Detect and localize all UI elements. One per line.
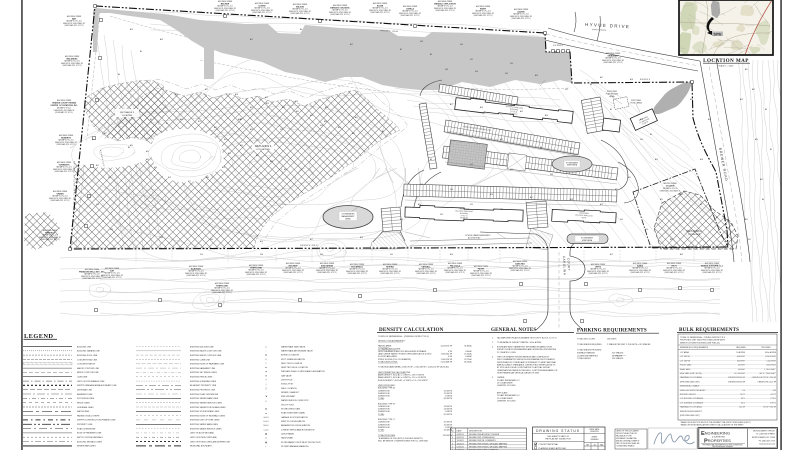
svg-text:CATCH BASIN: CATCH BASIN <box>281 432 294 435</box>
svg-text:MINIMUM BULK REQUIREMENTS: MINIMUM BULK REQUIREMENTS <box>680 347 709 349</box>
svg-text:PICNIC AREA: PICNIC AREA <box>630 101 642 104</box>
svg-text:REVISED PER RE: COMMENTS: REVISED PER RE: COMMENTS <box>469 440 496 442</box>
svg-text:TOTAL AREA OF SUBJECT PARCEL:: TOTAL AREA OF SUBJECT PARCEL: 94.8± ACRE… <box>497 341 542 344</box>
svg-text:50 FEET: 50 FEET <box>738 369 746 371</box>
svg-text:TOTAL SPACES PROVIDED:: TOTAL SPACES PROVIDED: <box>577 349 602 352</box>
svg-text:2,561 FEET: 2,561 FEET <box>766 360 776 362</box>
svg-text:TOTAL BUILDABLE AREA: 4,128,57: TOTAL BUILDABLE AREA: 4,128,570 SF - 2,1… <box>378 366 449 369</box>
svg-text:0.00 AC: 0.00 AC <box>465 355 472 358</box>
svg-text:BUILDING TYPE 'A':: BUILDING TYPE 'A': <box>378 387 396 390</box>
svg-text:B5: B5 <box>140 51 142 53</box>
svg-text:APPLICANT:: APPLICANT: <box>497 391 508 394</box>
svg-text:COURT: COURT <box>567 258 571 271</box>
svg-text:MATCHLINES: MATCHLINES <box>77 410 90 413</box>
svg-text:PLANNING BOARD APPROVAL: PLANNING BOARD APPROVAL <box>539 447 566 450</box>
svg-text:BLDG: BLDG <box>582 217 587 219</box>
svg-text:MUNICIPAL BOUNDARY: MUNICIPAL BOUNDARY <box>190 445 213 448</box>
svg-text:446: 446 <box>440 214 443 216</box>
svg-text:TAX MAP IDENTIFICATION NUMBER:: TAX MAP IDENTIFICATION NUMBER: SECTION 9… <box>497 337 557 340</box>
svg-text:1,009,226 SF: 1,009,226 SF <box>441 359 453 361</box>
svg-text:MONTGOMERY, NY 12549: MONTGOMERY, NY 12549 <box>752 437 775 439</box>
svg-text:WATER SERVICE CURB STOP: WATER SERVICE CURB STOP <box>281 399 309 402</box>
svg-text:10 ACRES: 10 ACRES <box>736 351 745 354</box>
svg-text:AREA: AREA <box>610 95 616 98</box>
svg-text:EXISTING MINOR CONTOUR LINE: EXISTING MINOR CONTOUR LINE <box>190 355 222 357</box>
svg-text:THE PLAN SET ISSUED FOR:: THE PLAN SET ISSUED FOR: <box>545 438 571 441</box>
svg-text:448: 448 <box>445 69 448 71</box>
svg-text:4.731 ACRES: 4.731 ACRES <box>256 148 270 151</box>
svg-text:▤: ▤ <box>265 408 267 411</box>
svg-text:BASE DENSITY: 46.52 AC x 3 UN: BASE DENSITY: 46.52 AC x 3 UNITS x 1.15 … <box>378 376 427 379</box>
svg-text:09/15/23: 09/15/23 <box>457 437 464 439</box>
svg-text:PROPOSED USE: MULTIPLE DWELLIN: PROPOSED USE: MULTIPLE DWELLINGS WITH <box>680 340 725 342</box>
svg-text:Ph: (845) 457-7727: Ph: (845) 457-7727 <box>759 440 775 442</box>
svg-text:GAY: GAY <box>110 269 115 272</box>
svg-text:○: ○ <box>265 392 266 394</box>
svg-text:LIMIT OF NYSDEC WETLAND BUFFER: LIMIT OF NYSDEC WETLAND BUFFER LINE <box>190 440 231 443</box>
svg-text:SCALE: 1" = 2000': SCALE: 1" = 2000' <box>719 65 735 68</box>
svg-text:WATER MAIN AIR RELEASE VALVE: WATER MAIN AIR RELEASE VALVE <box>281 349 314 352</box>
svg-text:300 FEET: 300 FEET <box>737 360 746 362</box>
svg-text:NORTH AMERICAN VERTICAL DATUM: NORTH AMERICAN VERTICAL DATUM OF 1988. <box>497 372 540 375</box>
svg-text:WETLAND FLAG LOCATION AND DESI: WETLAND FLAG LOCATION AND DESIGNATION <box>281 370 325 373</box>
svg-text:DRIVEWAY LINE: DRIVEWAY LINE <box>77 389 93 392</box>
svg-text:21 EAST BROADWAY LLC: 21 EAST BROADWAY LLC <box>497 394 520 397</box>
svg-text:BUILDING LINE: BUILDING LINE <box>77 346 92 348</box>
svg-text:LIMIT OF ACOE WETLAND: LIMIT OF ACOE WETLAND <box>190 432 215 435</box>
svg-text:EXISTING EDGE OF PAVEMENT LINE: EXISTING EDGE OF PAVEMENT LINE <box>190 363 225 366</box>
svg-text:CLUBHOUSE PARKING: CLUBHOUSE PARKING <box>577 354 598 357</box>
svg-text:OBSERVATIONS TAKEN IN THE FIEL: OBSERVATIONS TAKEN IN THE FIELD. CONTOUR… <box>497 369 558 372</box>
svg-text:B6: B6 <box>590 84 592 86</box>
svg-text:2,102,468 SF: 2,102,468 SF <box>441 362 453 364</box>
svg-text:B4: B4 <box>382 131 384 133</box>
svg-text:3: 3 <box>452 446 453 448</box>
svg-text:25.10 AC: 25.10 AC <box>464 353 472 356</box>
svg-text:(PER DWELLING UNIT): (PER DWELLING UNIT) <box>680 381 700 383</box>
svg-text:452: 452 <box>565 89 568 91</box>
svg-text:23.17 AC: 23.17 AC <box>464 358 472 361</box>
svg-text:94.80 AC: 94.80 AC <box>464 345 472 348</box>
svg-text:7: 7 <box>452 434 453 436</box>
svg-text:324 SPACES: 324 SPACES <box>612 357 624 360</box>
svg-text:SPOT GRADE ELEVATION: SPOT GRADE ELEVATION <box>281 358 305 361</box>
svg-text:PERC TEST LOCATION: PERC TEST LOCATION <box>281 362 303 365</box>
svg-text:LAND UNDER WATER / PONDS / WET: LAND UNDER WATER / PONDS / WETLANDS (ACO… <box>378 353 432 356</box>
svg-text:EXISTING SILT FENCE LINES: EXISTING SILT FENCE LINES <box>190 372 217 374</box>
svg-text:SENIOR CITIZEN HOUSING (USE §1: SENIOR CITIZEN HOUSING (USE §185-25) <box>680 342 720 344</box>
svg-text:PHOTOGRAMMETRIC METHODS FROM A: PHOTOGRAMMETRIC METHODS FROM AERIAL PHOT… <box>497 358 556 361</box>
svg-text:LOT SURFACE COVERAGE: LOT SURFACE COVERAGE <box>680 401 704 404</box>
svg-text:LIMIT OF NYSDEC WETLAND: LIMIT OF NYSDEC WETLAND <box>190 436 217 439</box>
svg-text:450: 450 <box>96 204 99 206</box>
svg-text:ACEVEDO: ACEVEDO <box>191 267 201 270</box>
svg-text:B4: B4 <box>650 134 652 136</box>
svg-text:EXISTING FENCE LINES: EXISTING FENCE LINES <box>190 377 213 379</box>
svg-text:WEEKS & MOORE, LLC: WEEKS & MOORE, LLC <box>701 265 724 267</box>
svg-text:1 BEDROOM 650 SF: 1 BEDROOM 650 SF <box>728 377 746 379</box>
svg-text:EXISTING GUIDERAIL LINES: EXISTING GUIDERAIL LINES <box>190 380 217 383</box>
svg-text:1.52 ACRES: 1.52 ACRES <box>122 114 133 117</box>
svg-text:MAY: MAY <box>72 17 77 20</box>
svg-text:RIVERA: RIVERA <box>386 265 394 268</box>
svg-text:SURFACE PARKING: SURFACE PARKING <box>577 352 595 355</box>
svg-text:www.epsteam.com: www.epsteam.com <box>759 443 775 446</box>
svg-text:ACCESS ROAD: ACCESS ROAD <box>468 236 481 239</box>
svg-text:TORRENTS: TORRENTS <box>59 164 71 166</box>
svg-text:452: 452 <box>470 59 473 61</box>
svg-text:B4: B4 <box>300 29 302 31</box>
svg-text:B=1.0: B=1.0 <box>264 425 269 427</box>
svg-text:01/09/24: 01/09/24 <box>457 434 464 436</box>
svg-text:TREPICONE: TREPICONE <box>250 267 262 269</box>
svg-text:EXISTING WATER SERVICE LINES: EXISTING WATER SERVICE LINES <box>190 427 222 430</box>
svg-text:FLOODPLAIN LANDS:: FLOODPLAIN LANDS: <box>378 355 398 358</box>
svg-text:WETLANDS 4: WETLANDS 4 <box>255 144 272 148</box>
svg-text:20 UNITS: 20 UNITS <box>444 424 453 426</box>
svg-text:450: 450 <box>200 254 203 256</box>
svg-text:446: 446 <box>320 254 323 256</box>
svg-text:WATER MAIN GATE VALVE: WATER MAIN GATE VALVE <box>281 345 306 348</box>
svg-text:1.825 ACRES: 1.825 ACRES <box>688 233 701 236</box>
svg-text:452: 452 <box>108 177 111 179</box>
svg-text:EXISTING LIMIT OF TREE LINES: EXISTING LIMIT OF TREE LINES <box>190 420 220 422</box>
svg-text:BONUS DENSITY: 46.52 AC x 1 U: BONUS DENSITY: 46.52 AC x 1 UNITS x 2.5 … <box>378 379 428 382</box>
svg-text:WINFIELD: WINFIELD <box>45 232 55 234</box>
svg-text:BECKER: BECKER <box>221 3 230 5</box>
svg-text:▣: ▣ <box>265 433 267 436</box>
svg-text:STEEP SLOPES (15% OR GREATER):: STEEP SLOPES (15% OR GREATER): <box>378 358 412 361</box>
svg-text:UTILITY POLE: UTILITY POLE <box>281 404 295 406</box>
svg-text:10/13/23: 10/13/23 <box>457 443 464 445</box>
svg-text:HABITABLE FLOOR AREA: HABITABLE FLOOR AREA <box>680 376 703 379</box>
svg-text:LESS THE AREA OF ANY NYS REGUL: LESS THE AREA OF ANY NYS REGULATED STREA… <box>378 350 427 353</box>
svg-text:AREA: AREA <box>346 217 352 220</box>
svg-text:YARD DRAIN: YARD DRAIN <box>281 437 293 440</box>
svg-text:EXISTING SEWER FORCE MAIN LINE: EXISTING SEWER FORCE MAIN LINES <box>190 406 226 409</box>
svg-text:1,735.3 FEET*: 1,735.3 FEET* <box>764 369 776 371</box>
svg-text:2 UNITS: 2 UNITS <box>445 411 453 413</box>
svg-text:PC ON APRIL 3, 2009.: PC ON APRIL 3, 2009. <box>497 351 517 354</box>
svg-text:WETLANDS 2: WETLANDS 2 <box>686 230 702 233</box>
svg-text:B6: B6 <box>430 159 432 161</box>
svg-text:452: 452 <box>748 239 751 241</box>
svg-text:CWIKLA: CWIKLA <box>406 7 415 10</box>
svg-text:ROBERTS: ROBERTS <box>61 137 71 139</box>
svg-text:48.26 AC: 48.26 AC <box>464 361 472 364</box>
svg-text:FIRST FLOOR ELEVATION: FIRST FLOOR ELEVATION <box>281 420 305 423</box>
svg-text:444: 444 <box>505 73 508 75</box>
svg-text:ADJACENT PROPERTY LINE: ADJACENT PROPERTY LINE <box>190 384 217 387</box>
svg-text:FALCIOLA: FALCIOLA <box>450 264 461 267</box>
svg-text:B4: B4 <box>700 204 702 206</box>
svg-text:TOTAL UNIT COUNT:: TOTAL UNIT COUNT: <box>577 338 596 341</box>
svg-text:CHESTER, NY 10918: CHESTER, NY 10918 <box>497 401 515 403</box>
svg-text:FREEDOM WELL EST., INC.: FREEDOM WELL EST., INC. <box>79 271 106 273</box>
svg-text:15 OCEAN DRIVE: 15 OCEAN DRIVE <box>497 382 513 385</box>
svg-text:SIDE YARD (ONE / BOTH): SIDE YARD (ONE / BOTH) <box>680 372 702 375</box>
svg-text:NUMBER: NUMBER <box>591 439 599 441</box>
svg-text:PARKING STALL STRIPE: PARKING STALL STRIPE <box>77 414 100 417</box>
svg-text:TOTAL SPACES REQUIRED:: TOTAL SPACES REQUIRED: <box>577 343 602 346</box>
svg-text:94.8± ACRES: 94.8± ACRES <box>765 351 777 354</box>
svg-text:GUIDERAIL LINES: GUIDERAIL LINES <box>77 406 94 409</box>
svg-text:ROPERTIES: ROPERTIES <box>708 438 731 443</box>
svg-text:BULK REQUIREMENTS: BULK REQUIREMENTS <box>679 327 739 333</box>
svg-text:448: 448 <box>500 209 503 211</box>
svg-text:SANCHEZ: SANCHEZ <box>515 262 525 265</box>
svg-text:448: 448 <box>260 254 263 256</box>
svg-text:450: 450 <box>510 63 513 65</box>
svg-text:GREEN: GREEN <box>56 193 64 195</box>
svg-text:B5: B5 <box>150 119 152 121</box>
svg-text:G=1.0: G=1.0 <box>264 417 269 419</box>
svg-text:SWPPP (CONSTRUCTION) PHASING L: SWPPP (CONSTRUCTION) PHASING LINE <box>77 419 116 422</box>
svg-text:CONCRETE PAD LINE: CONCRETE PAD LINE <box>77 358 98 361</box>
svg-text:DePEW: DePEW <box>258 5 265 7</box>
svg-text:▢: ▢ <box>265 437 267 440</box>
svg-text:2 BEDROOM 800 SF: 2 BEDROOM 800 SF <box>728 381 746 383</box>
svg-text:-10: -10 <box>593 444 596 446</box>
svg-text:EASEMENT LINE: EASEMENT LINE <box>77 393 93 396</box>
svg-text:444: 444 <box>390 254 393 256</box>
svg-text:B6: B6 <box>128 147 130 149</box>
svg-text:●: ● <box>265 346 266 348</box>
svg-text:SITE: SITE <box>714 32 723 36</box>
svg-text:BOUNDARY AND PLANIMETRIC INFOR: BOUNDARY AND PLANIMETRIC INFORMATION BAS… <box>497 346 552 349</box>
svg-text:FENCE LINES: FENCE LINES <box>77 403 90 405</box>
svg-text:MINOR CONTOUR LINE: MINOR CONTOUR LINE <box>77 372 99 374</box>
svg-text:50 / 50 FEET: 50 / 50 FEET <box>734 373 745 375</box>
svg-text:EXISTING SEWER MAIN LINES: EXISTING SEWER MAIN LINES <box>190 397 219 400</box>
svg-text:71 CLINTON STREET: 71 CLINTON STREET <box>756 434 776 436</box>
svg-text:* BASED UPON SECTION 185-25 OF: * BASED UPON SECTION 185-25 OF THE INTER… <box>680 421 751 424</box>
svg-text:5: 5 <box>452 440 453 442</box>
svg-text:300 FEET: 300 FEET <box>737 356 746 358</box>
svg-text:TOWN OF NEWBURGH - (ZONING DIS: TOWN OF NEWBURGH - (ZONING DISTRICT R-3) <box>378 336 429 338</box>
svg-text:MULTARI: MULTARI <box>289 264 298 267</box>
svg-text:MGMT AREA: MGMT AREA <box>582 239 593 242</box>
svg-text:BUILDING GARAGE LINE: BUILDING GARAGE LINE <box>77 350 101 353</box>
svg-text:CONCRETE HATCH: CONCRETE HATCH <box>77 363 96 366</box>
svg-text:S 01°08'38" E: S 01°08'38" E <box>553 45 563 47</box>
svg-text:L=1.0: L=1.0 <box>264 429 269 431</box>
svg-text:EXISTING MAJOR CONTOUR LINE: EXISTING MAJOR CONTOUR LINE <box>190 350 222 353</box>
svg-text:64 UNITS: 64 UNITS <box>444 398 453 400</box>
svg-text:EXISTING SEWER SERVICE LINES: EXISTING SEWER SERVICE LINES <box>190 403 223 405</box>
svg-text:EXISTING STORM DRAIN LINES: EXISTING STORM DRAIN LINES <box>190 410 220 413</box>
svg-text:LOWEST SERVICEABLE ELEVATION: LOWEST SERVICEABLE ELEVATION <box>281 428 315 431</box>
svg-text:PARKING REQUIREMENTS: PARKING REQUIREMENTS <box>577 328 647 334</box>
svg-text:2 SPACES PER UNIT X 156 UNITS: 2 SPACES PER UNIT X 156 UNITS = 312 SPAC… <box>607 343 651 346</box>
svg-text:OWNER:: OWNER: <box>497 377 505 379</box>
svg-text:LIMIT OF DISTURBANCE LINE: LIMIT OF DISTURBANCE LINE <box>77 380 105 383</box>
svg-text:B6: B6 <box>240 119 242 121</box>
svg-text:4,128,570 SF: 4,128,570 SF <box>441 346 453 348</box>
svg-text:TOTAL DESIGN: TOTAL DESIGN <box>577 357 591 360</box>
svg-text:B4: B4 <box>765 109 767 111</box>
svg-text:BASEMENT FLOOR ELEVATION: BASEMENT FLOOR ELEVATION <box>281 424 311 427</box>
svg-text:GENERAL NOTES: GENERAL NOTES <box>491 327 536 333</box>
svg-text:DADGARIAN: DADGARIAN <box>321 264 334 267</box>
svg-text:11/10/23: 11/10/23 <box>457 440 464 442</box>
svg-text:MINIMUM ALLOWABLE: MINIMUM ALLOWABLE <box>680 385 700 388</box>
svg-text:LOT AREA: LOT AREA <box>680 351 690 354</box>
svg-text:TREPICONE: TREPICONE <box>216 285 228 287</box>
svg-text:MONTGOMERY OFFICE:: MONTGOMERY OFFICE: <box>753 430 775 432</box>
svg-text:MAJOR CONTOUR LINE: MAJOR CONTOUR LINE <box>77 367 100 370</box>
svg-text:SWPPP DRAINAGE AREA BOUNDARY L: SWPPP DRAINAGE AREA BOUNDARY LINE <box>77 384 117 387</box>
svg-text:LOT DEPTH: LOT DEPTH <box>680 360 691 362</box>
svg-text:SIGN & POST: SIGN & POST <box>281 384 294 386</box>
svg-text:KUZMI: KUZMI <box>377 5 384 7</box>
svg-text:* A MINIMUM OF 116 UNITS (2.5: * A MINIMUM OF 116 UNITS (2.5 BONUS DENS… <box>378 437 423 440</box>
svg-text:2-BEDROOM: 2-BEDROOM <box>378 424 390 426</box>
svg-text:312 SPACES: 312 SPACES <box>612 352 624 355</box>
svg-text:50 UNITS: 50 UNITS <box>444 414 453 416</box>
svg-text:448: 448 <box>420 41 423 43</box>
svg-text:N 89°45'10" E: N 89°45'10" E <box>640 79 650 81</box>
svg-text:RICH: RICH <box>672 265 677 267</box>
svg-text:DWELLING UNITS PER ACRE *: DWELLING UNITS PER ACRE * <box>680 389 706 392</box>
svg-text:○: ○ <box>265 351 266 353</box>
svg-text:BORING LOCATION: BORING LOCATION <box>281 354 300 357</box>
svg-text:CONSIDERED INVALID.: CONSIDERED INVALID. <box>616 445 635 448</box>
svg-text:467.3' / 736.4 FEET*: 467.3' / 736.4 FEET* <box>759 373 776 375</box>
svg-text:PROPERTY LINE: PROPERTY LINE <box>77 424 93 426</box>
svg-text:LIGHT POLE: LIGHT POLE <box>281 380 293 382</box>
svg-text:B5: B5 <box>570 149 572 151</box>
svg-text:GOLDEN: GOLDEN <box>666 186 675 188</box>
svg-text:21 EAST BROADWAY LLC: 21 EAST BROADWAY LLC <box>497 379 520 382</box>
svg-text:1 BEDROOM 727 SF / 850 SF: 1 BEDROOM 727 SF / 850 SF <box>752 377 777 379</box>
svg-text:4: 4 <box>452 443 453 445</box>
svg-text:FRONT YARD: FRONT YARD <box>680 364 692 367</box>
svg-text:SKIBINSKY: SKIBINSKY <box>608 55 620 57</box>
svg-text:LOT WIDTH: LOT WIDTH <box>680 356 691 358</box>
svg-text:EXISTING EDGE OF SIDEWALK LINE: EXISTING EDGE OF SIDEWALK LINES <box>190 414 226 417</box>
svg-text:450: 450 <box>510 169 513 171</box>
svg-text:No.: No. <box>451 430 454 432</box>
svg-text:12 SPACES: 12 SPACES <box>612 354 623 357</box>
svg-text:ROAD STATIONING LABEL: ROAD STATIONING LABEL <box>281 412 306 415</box>
svg-text:S 88°54'40" W 2134.70': S 88°54'40" W 2134.70' <box>300 245 318 247</box>
svg-text:NGINEERING: NGINEERING <box>705 431 730 436</box>
svg-text:CHESTER, NY 10918: CHESTER, NY 10918 <box>497 385 515 387</box>
svg-text:FIRE HYDRANT: FIRE HYDRANT <box>281 395 296 398</box>
svg-text:156 UNITS: 156 UNITS <box>607 339 617 341</box>
svg-text:446: 446 <box>160 237 163 239</box>
svg-text:446: 446 <box>475 71 478 73</box>
svg-text:EDGE OF PAVEMENT LINE: EDGE OF PAVEMENT LINE <box>77 432 102 435</box>
svg-text:REQUIRED: REQUIRED <box>736 347 746 349</box>
svg-text:WETLANDS 3: WETLANDS 3 <box>120 111 135 114</box>
svg-text:GARAGE FLOOR ELEVATION: GARAGE FLOOR ELEVATION <box>281 416 308 419</box>
svg-text:WILSON: WILSON <box>296 6 305 8</box>
svg-text:BERGES / WILSNYA: BERGES / WILSNYA <box>330 6 350 9</box>
svg-text:26,092 SF: 26,092 SF <box>460 217 468 219</box>
svg-text:KABA: KABA <box>637 264 643 267</box>
svg-text:TOWN OF NEWBURGH - ZONING DIST: TOWN OF NEWBURGH - ZONING DISTRICT R-3 <box>680 337 726 339</box>
svg-text:DESCRIPTION: DESCRIPTION <box>469 430 483 432</box>
svg-text:MGMT AREA: MGMT AREA <box>567 164 578 167</box>
svg-text:448: 448 <box>550 174 553 176</box>
svg-text:ORTIZ: ORTIZ <box>595 266 602 268</box>
svg-text:2 BEDROOM 1,127 SF: 2 BEDROOM 1,127 SF <box>757 381 776 383</box>
svg-text:REVISED PER TOWN/DESIGN: REVISED PER TOWN/DESIGN <box>469 437 495 439</box>
svg-text:450: 450 <box>320 125 323 127</box>
svg-text:SEPTIC SYSTEM LATERALS: SEPTIC SYSTEM LATERALS <box>77 436 104 439</box>
svg-text:DRAWING STATUS: DRAWING STATUS <box>536 429 580 433</box>
svg-text:STORM DRAINAGE MANHOLE: STORM DRAINAGE MANHOLE <box>281 445 309 448</box>
svg-text:◐: ◐ <box>265 446 266 448</box>
svg-text:FILTER FABRIC DROP INLET PROTE: FILTER FABRIC DROP INLET PROTECTION <box>281 441 321 444</box>
svg-text:452: 452 <box>470 164 473 166</box>
svg-text:EXISTING PROPERTY LINE: EXISTING PROPERTY LINE <box>190 390 216 392</box>
svg-text:B6: B6 <box>430 54 432 56</box>
svg-text:446: 446 <box>460 44 463 46</box>
svg-text:CENTER, OCCUPATIONS, INC.: CENTER, OCCUPATIONS, INC. <box>50 104 78 107</box>
svg-text:PETRY: PETRY <box>478 268 485 270</box>
svg-text:444: 444 <box>640 139 643 141</box>
svg-text:444: 444 <box>450 189 453 191</box>
svg-text:MAP ACCURACY STANDARDS. LIMITE: MAP ACCURACY STANDARDS. LIMITED FIELD VE… <box>497 364 556 367</box>
svg-text:BASE DENSITY: 46.52 AC x 3 UN: BASE DENSITY: 46.52 AC x 3 UNITS = 139.5… <box>378 374 425 377</box>
svg-text:PROVIDED: PROVIDED <box>761 347 771 349</box>
svg-text:B4: B4 <box>118 74 120 76</box>
svg-text:BY NYS GEOLOGICAL CORPORATION: BY NYS GEOLOGICAL CORPORATION TO ACTUAL … <box>497 366 551 369</box>
svg-text:452: 452 <box>280 129 283 131</box>
svg-text:SEWER CLEANOUT: SEWER CLEANOUT <box>281 391 300 394</box>
svg-text:EXISTING CURB LINE: EXISTING CURB LINE <box>190 359 211 361</box>
svg-text:ROAD CENTERLINE: ROAD CENTERLINE <box>77 427 96 430</box>
svg-text:EXISTING WATER MAIN LINES: EXISTING WATER MAIN LINES <box>190 423 219 426</box>
svg-text:LOT BUILDING COVERAGE: LOT BUILDING COVERAGE <box>680 397 704 400</box>
svg-text:448: 448 <box>110 229 113 231</box>
svg-text:EXISTING BUILDING LINE: EXISTING BUILDING LINE <box>190 346 214 348</box>
svg-text:REAR YARD: REAR YARD <box>680 368 691 371</box>
svg-text:SEWER MAIN LINES: SEWER MAIN LINES <box>77 445 96 448</box>
svg-text:WILL BE SENIOR CITIZEN/HOUSING: WILL BE SENIOR CITIZEN/HOUSING FOR 55+ U… <box>378 440 429 443</box>
svg-text:B5: B5 <box>716 217 718 219</box>
svg-text:(PER DWELLING UNIT): (PER DWELLING UNIT) <box>680 415 700 417</box>
svg-text:STONE CHECK DAM: STONE CHECK DAM <box>281 408 300 411</box>
svg-text:BUILDING ROOF LINE: BUILDING ROOF LINE <box>77 355 98 357</box>
svg-text:CASSELL: CASSELL <box>421 265 431 268</box>
svg-text:03/08/2023: 03/08/2023 <box>590 431 599 433</box>
svg-text:< 35 FT: < 35 FT <box>770 393 777 396</box>
svg-text:SURVEY DONE BY ENGINEERING AND: SURVEY DONE BY ENGINEERING AND SURVEYING… <box>497 348 557 351</box>
svg-text:BUILDING SETBACK LINES: BUILDING SETBACK LINES <box>77 440 103 443</box>
svg-text:07/19/23: 07/19/23 <box>457 446 464 448</box>
svg-text:DATE: DATE <box>457 429 463 432</box>
svg-text:50 FEET: 50 FEET <box>738 365 746 367</box>
svg-text:0.00 AC: 0.00 AC <box>465 350 472 353</box>
svg-text:* BASED UPON RECTANGULAR NET D: * BASED UPON RECTANGULAR NET DENSITY CAL… <box>680 424 744 427</box>
svg-text:DENSITY CALCULATION: DENSITY CALCULATION <box>379 327 444 333</box>
svg-text:■: ■ <box>265 413 266 415</box>
svg-text:MENDEZ / WPLGTRUS: MENDEZ / WPLGTRUS <box>434 3 456 5</box>
svg-text:298.2 FEET: 298.2 FEET <box>766 365 776 367</box>
svg-text:WELL LOCATION: WELL LOCATION <box>281 387 297 390</box>
svg-text:15 OCEAN DRIVE: 15 OCEAN DRIVE <box>497 397 513 400</box>
svg-text:THIS SHEET IS PART OF: THIS SHEET IS PART OF <box>547 435 570 438</box>
svg-text:6: 6 <box>452 437 453 439</box>
svg-text:EXISTING ROAD CENTERLINE: EXISTING ROAD CENTERLINE <box>190 393 219 396</box>
svg-text:B5: B5 <box>770 149 772 151</box>
svg-text:▩: ▩ <box>265 441 267 444</box>
svg-text:SMITH: SMITH <box>480 8 487 10</box>
